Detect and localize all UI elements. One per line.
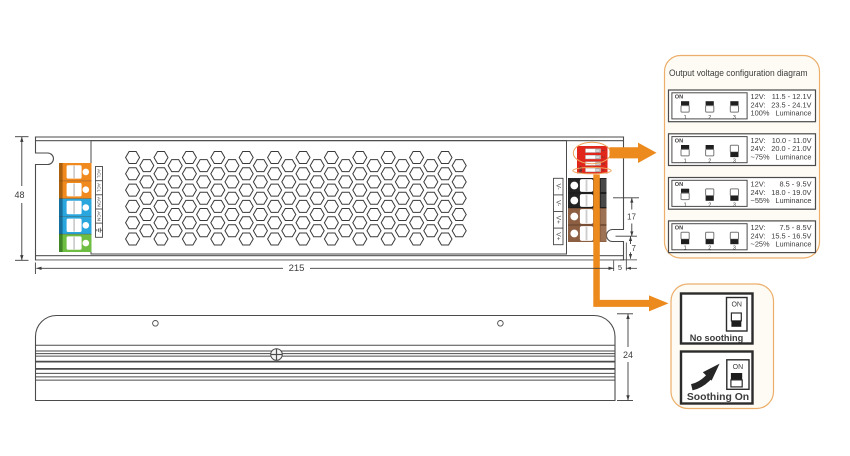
svg-text:1: 1: [684, 159, 687, 165]
svg-text:~55%: ~55%: [751, 196, 771, 205]
svg-text:ON: ON: [675, 138, 683, 144]
svg-text:Luminance: Luminance: [775, 196, 811, 205]
svg-text:4: 4: [601, 169, 605, 171]
svg-text:ACL: ACL: [97, 183, 102, 192]
svg-text:3: 3: [601, 163, 605, 165]
svg-text:~25%: ~25%: [751, 240, 771, 249]
svg-text:1: 1: [684, 246, 687, 252]
svg-text:2: 2: [708, 159, 711, 165]
svg-text:48: 48: [14, 190, 24, 200]
svg-text:ON: ON: [731, 302, 742, 309]
svg-text:Luminance: Luminance: [775, 152, 811, 161]
svg-text:2: 2: [708, 202, 711, 208]
svg-text:Luminance: Luminance: [775, 240, 811, 249]
svg-text:ACL: ACL: [97, 169, 102, 178]
svg-text:3: 3: [733, 115, 736, 121]
svg-text:Soothing On: Soothing On: [687, 392, 749, 403]
svg-text:2: 2: [601, 156, 605, 158]
svg-text:V-: V-: [555, 183, 562, 189]
svg-text:ACN: ACN: [97, 197, 102, 207]
svg-text:2: 2: [708, 246, 711, 252]
svg-text:7: 7: [631, 244, 636, 253]
svg-text:1: 1: [684, 202, 687, 208]
svg-text:ON: ON: [675, 182, 683, 188]
svg-text:17: 17: [627, 213, 636, 222]
svg-text:V-: V-: [555, 200, 562, 206]
svg-text:24: 24: [623, 350, 633, 360]
svg-text:Output voltage configuration d: Output voltage configuration diagram: [669, 68, 808, 78]
svg-text:3: 3: [733, 202, 736, 208]
svg-text:ON: ON: [675, 226, 683, 232]
svg-text:ACN: ACN: [97, 211, 102, 221]
svg-text:2: 2: [708, 115, 711, 121]
svg-text:100%: 100%: [751, 109, 770, 118]
svg-text:ON: ON: [733, 364, 744, 371]
svg-text:ON: ON: [675, 95, 683, 101]
svg-text:215: 215: [289, 263, 305, 274]
svg-text:3: 3: [733, 159, 736, 165]
svg-text:V+: V+: [555, 232, 562, 240]
svg-text:~75%: ~75%: [751, 152, 771, 161]
svg-text:5: 5: [618, 263, 622, 272]
svg-text:1: 1: [684, 115, 687, 121]
svg-text:No soothing: No soothing: [690, 333, 744, 343]
svg-text:3: 3: [733, 246, 736, 252]
svg-text:1: 1: [601, 150, 605, 152]
svg-text:V+: V+: [555, 216, 562, 224]
svg-text:Luminance: Luminance: [775, 109, 811, 118]
